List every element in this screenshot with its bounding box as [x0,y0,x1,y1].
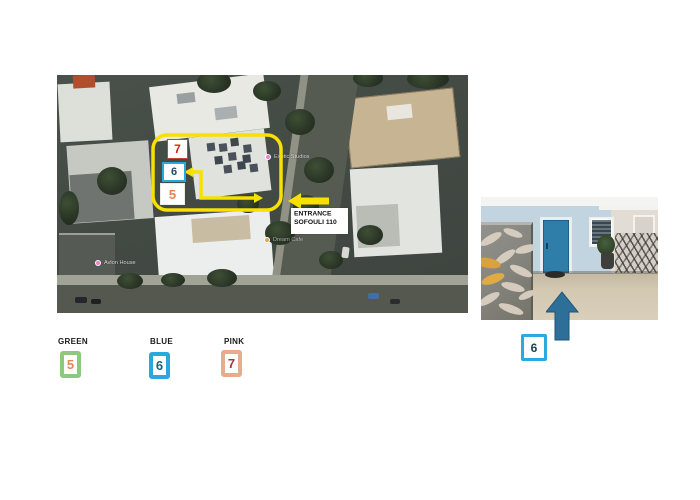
building-red-roof [73,75,96,89]
map-unit-box-6: 6 [162,162,186,182]
tree [285,109,315,135]
legend-label-pink: PINK [224,337,244,346]
entrance-line2: SOFOULI 110 [294,218,351,226]
photo-unit-badge-6: 6 [521,334,547,361]
tree [59,191,79,225]
building-roof-center [189,129,272,200]
road-bottom [57,285,468,313]
roof-sand-patch [191,215,251,243]
car-blue [368,293,379,299]
tree [407,75,449,89]
map-place-label: Exotic Studios [274,153,309,159]
legend-label-green: GREEN [58,337,88,346]
up-arrow-icon [546,290,580,342]
door-handle [546,243,548,249]
tree [304,157,334,183]
tree [357,225,383,245]
photo-sky-strip [481,197,658,206]
car [75,297,87,303]
map-marker-pink-icon [265,154,271,160]
car [390,299,400,304]
legend-box-pink: 7 [221,350,242,377]
tree [117,273,143,289]
tree [237,195,259,213]
satellite-map: Exotic Studios Avlon House Dream Cafe 7 … [57,75,468,313]
legend-box-blue: 6 [149,352,170,379]
entrance-label: ENTRANCE SOFOULI 110 [291,208,348,234]
tree [253,81,281,101]
building-roof [58,82,113,143]
potted-plant-leaves [597,235,615,255]
plant-pot [601,253,614,269]
map-place-label: Avlon House [104,259,136,265]
car [91,299,101,304]
page: Exotic Studios Avlon House Dream Cafe 7 … [0,0,700,500]
tree [319,251,343,269]
tree [207,269,237,287]
roof-ac-units [207,143,216,152]
roof-structure [386,104,412,121]
tree [161,273,185,287]
building-roof-beige [344,87,461,168]
patterned-gate [481,222,533,320]
doormat [545,271,565,278]
palm-tree [97,167,127,195]
tree [353,75,383,87]
legend-label-blue: BLUE [150,337,173,346]
decorative-metal-screen [615,233,658,275]
car-white [341,247,349,259]
map-place-label: Dream Cafe [273,236,303,242]
map-unit-box-5: 5 [160,183,185,205]
entrance-line1: ENTRANCE [294,210,351,218]
map-marker-orange-icon [264,237,270,243]
map-unit-box-7: 7 [167,139,188,159]
legend-box-green: 5 [60,351,81,378]
map-marker-pink-icon [95,260,101,266]
gate-leaf-pattern [481,225,533,320]
